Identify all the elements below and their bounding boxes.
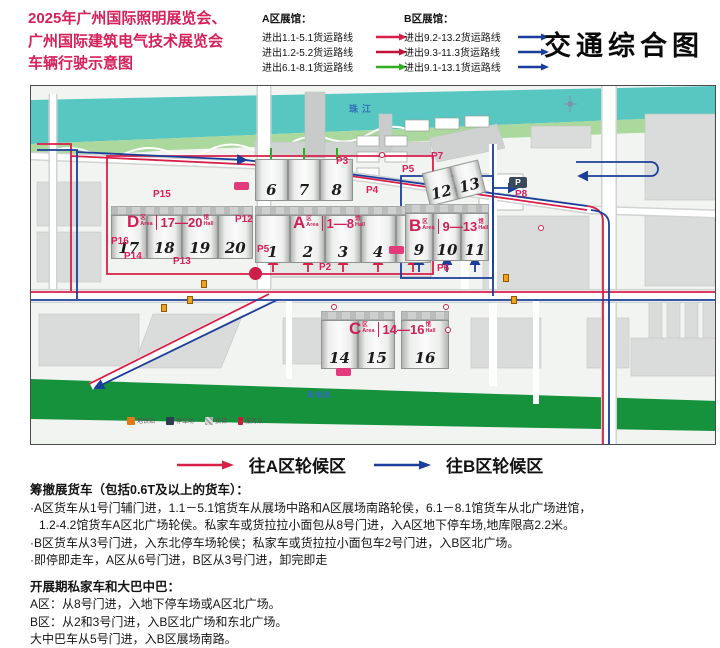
- parking-label-p12: P12: [235, 214, 253, 225]
- legend-a-row-2: 进出1.2-5.2货运路线: [262, 44, 408, 59]
- legend-b-label-1: 进出9.2-13.2货运路线: [404, 29, 516, 44]
- river-name-label: 珠江: [349, 102, 375, 115]
- notes-line: ·A区货车从1号门辅门进，1.1－5.1馆货车从展场中路和A区展场南路轮侯，6.…: [30, 500, 700, 518]
- hall-1: 1: [255, 215, 290, 263]
- map-mini-legend: 地铁站 停车场 扶梯 服务点: [127, 416, 263, 425]
- parking-label-p3: P3: [336, 156, 348, 167]
- notes-heading-cars: 开展期私家车和大巴中巴：: [30, 579, 700, 597]
- red-arrow-icon: [177, 460, 235, 470]
- title-line-2: 广州国际建筑电气技术展览会: [28, 31, 273, 54]
- mini-legend-service: 服务点: [238, 416, 263, 425]
- gate-icon: [187, 296, 193, 304]
- parking-lot-icon: P: [509, 177, 527, 188]
- metro-icon: [127, 417, 135, 425]
- notes-line: 1.2-4.2馆货车A区北广场轮侯。私家车或货拉拉小面包从8号门进，入A区地下停…: [30, 517, 700, 535]
- parking-label-p5-west: P5: [257, 244, 269, 255]
- notes-heading-trucks: 筹撤展货车（包括0.6T及以上的货车）：: [30, 482, 700, 500]
- notes-line: ·B区货车从3号门进，入东北停车场轮侯；私家车或货拉拉小面包车2号门进，入B区北…: [30, 535, 700, 553]
- gate-icon: [511, 296, 517, 304]
- notes-line: A区：从8号门进，入地下停车场或A区北广场。: [30, 596, 700, 614]
- gate-number-marker: [379, 152, 385, 158]
- legend-a-label-1: 进出1.1-5.1货运路线: [262, 29, 374, 44]
- legend-b-label-3: 进出9.1-13.1货运路线: [404, 59, 516, 74]
- notes-block: 筹撤展货车（包括0.6T及以上的货车）： ·A区货车从1号门辅门进，1.1－5.…: [30, 482, 700, 648]
- map-graphics: [31, 86, 716, 445]
- gate-number-marker: [443, 304, 449, 310]
- hall-7: 7: [288, 159, 321, 201]
- parking-label-p5-east: P5: [402, 164, 414, 175]
- notes-line: 大中巴车从5号门进，入B区展场南路。: [30, 631, 700, 648]
- parking-icon: [166, 417, 174, 425]
- gate-icon: [201, 280, 207, 288]
- parking-label-p8: P8: [515, 189, 527, 200]
- gate-number-marker: [538, 225, 544, 231]
- parking-label-p4: P4: [366, 185, 378, 196]
- parking-label-p16: P16: [111, 236, 129, 247]
- blue-arrow-icon: [518, 63, 550, 71]
- venue-badge: [389, 246, 404, 254]
- zone-d-label: D 区Area 17—20 馆Hall: [127, 212, 217, 232]
- legend-b-row-2: 进出9.3-11.3货运路线: [404, 44, 550, 59]
- traffic-guide-page: 2025年广州国际照明展览会、 广州国际建筑电气技术展览会 车辆行驶示意图 A区…: [0, 0, 720, 648]
- blue-arrow-icon: [374, 460, 432, 470]
- mini-legend-parking: 停车场: [166, 416, 194, 425]
- mini-legend-metro: 地铁站: [127, 416, 155, 425]
- legend-zone-b: B区展馆： 进出9.2-13.2货运路线 进出9.3-11.3货运路线 进出9.…: [404, 11, 550, 74]
- legend-zone-a: A区展馆： 进出1.1-5.1货运路线 进出1.2-5.2货运路线 进出6.1-…: [262, 11, 408, 74]
- legend-b-label-2: 进出9.3-11.3货运路线: [404, 44, 516, 59]
- title-line-1: 2025年广州国际照明展览会、: [28, 8, 273, 31]
- legend-a-title: A区展馆：: [262, 11, 408, 26]
- parking-label-p13: P13: [173, 256, 191, 267]
- zone-b-roof-strip: [405, 204, 489, 213]
- legend-a-label-2: 进出1.2-5.2货运路线: [262, 44, 374, 59]
- legend-b-title: B区展馆：: [404, 11, 550, 26]
- gate-icon: [161, 304, 167, 312]
- legend-a-row-1: 进出1.1-5.1货运路线: [262, 29, 408, 44]
- title-line-3: 车辆行驶示意图: [28, 53, 273, 76]
- waiting-a-label: 往A区轮候区: [249, 452, 346, 477]
- parking-label-p6: P6: [437, 263, 449, 274]
- creek-name-label: 黄埔涌: [307, 390, 331, 400]
- gate-number-marker: [331, 304, 337, 310]
- venue-badge: [336, 368, 351, 376]
- parking-label-p7: P7: [431, 151, 443, 162]
- service-icon: [238, 417, 243, 425]
- legend-a-label-3: 进出6.1-8.1货运路线: [262, 59, 374, 74]
- legend-a-row-3: 进出6.1-8.1货运路线: [262, 59, 408, 74]
- gate-number-marker: [445, 327, 451, 333]
- gate-icon: [503, 274, 509, 282]
- parking-label-p15: P15: [153, 189, 171, 200]
- mini-legend-escalator: 扶梯: [205, 416, 227, 425]
- zone-a-label: A 区Area 1—8 馆Hall: [293, 213, 368, 233]
- venue-badge: [234, 182, 249, 190]
- roundabout-marker: [249, 267, 262, 280]
- parking-label-p2: P2: [319, 262, 331, 273]
- zone-b-label: B 区Area 9—13 馆Hall: [409, 216, 491, 236]
- map-main-title: 交通综合图: [544, 24, 704, 63]
- notes-line: ·即停即走车，A区从6号门进，B区从3号门进，卸完即走: [30, 552, 700, 570]
- page-title: 2025年广州国际照明展览会、 广州国际建筑电气技术展览会 车辆行驶示意图: [28, 8, 273, 76]
- waiting-area-legend: 往A区轮候区 往B区轮候区: [0, 452, 720, 477]
- escalator-icon: [205, 417, 213, 425]
- waiting-b-label: 往B区轮候区: [446, 452, 543, 477]
- notes-line: B区：从2和3号门进，入B区北广场和东北广场。: [30, 614, 700, 632]
- site-map: 珠江 黄埔涌 17 18 19 20 6 7 8 1 2: [30, 85, 716, 445]
- legend-b-row-1: 进出9.2-13.2货运路线: [404, 29, 550, 44]
- legend-b-row-3: 进出9.1-13.1货运路线: [404, 59, 550, 74]
- hall-6: 6: [255, 159, 288, 201]
- parking-label-p14: P14: [124, 251, 142, 262]
- zone-c-label: C 区Area 14—16 馆Hall: [349, 319, 439, 339]
